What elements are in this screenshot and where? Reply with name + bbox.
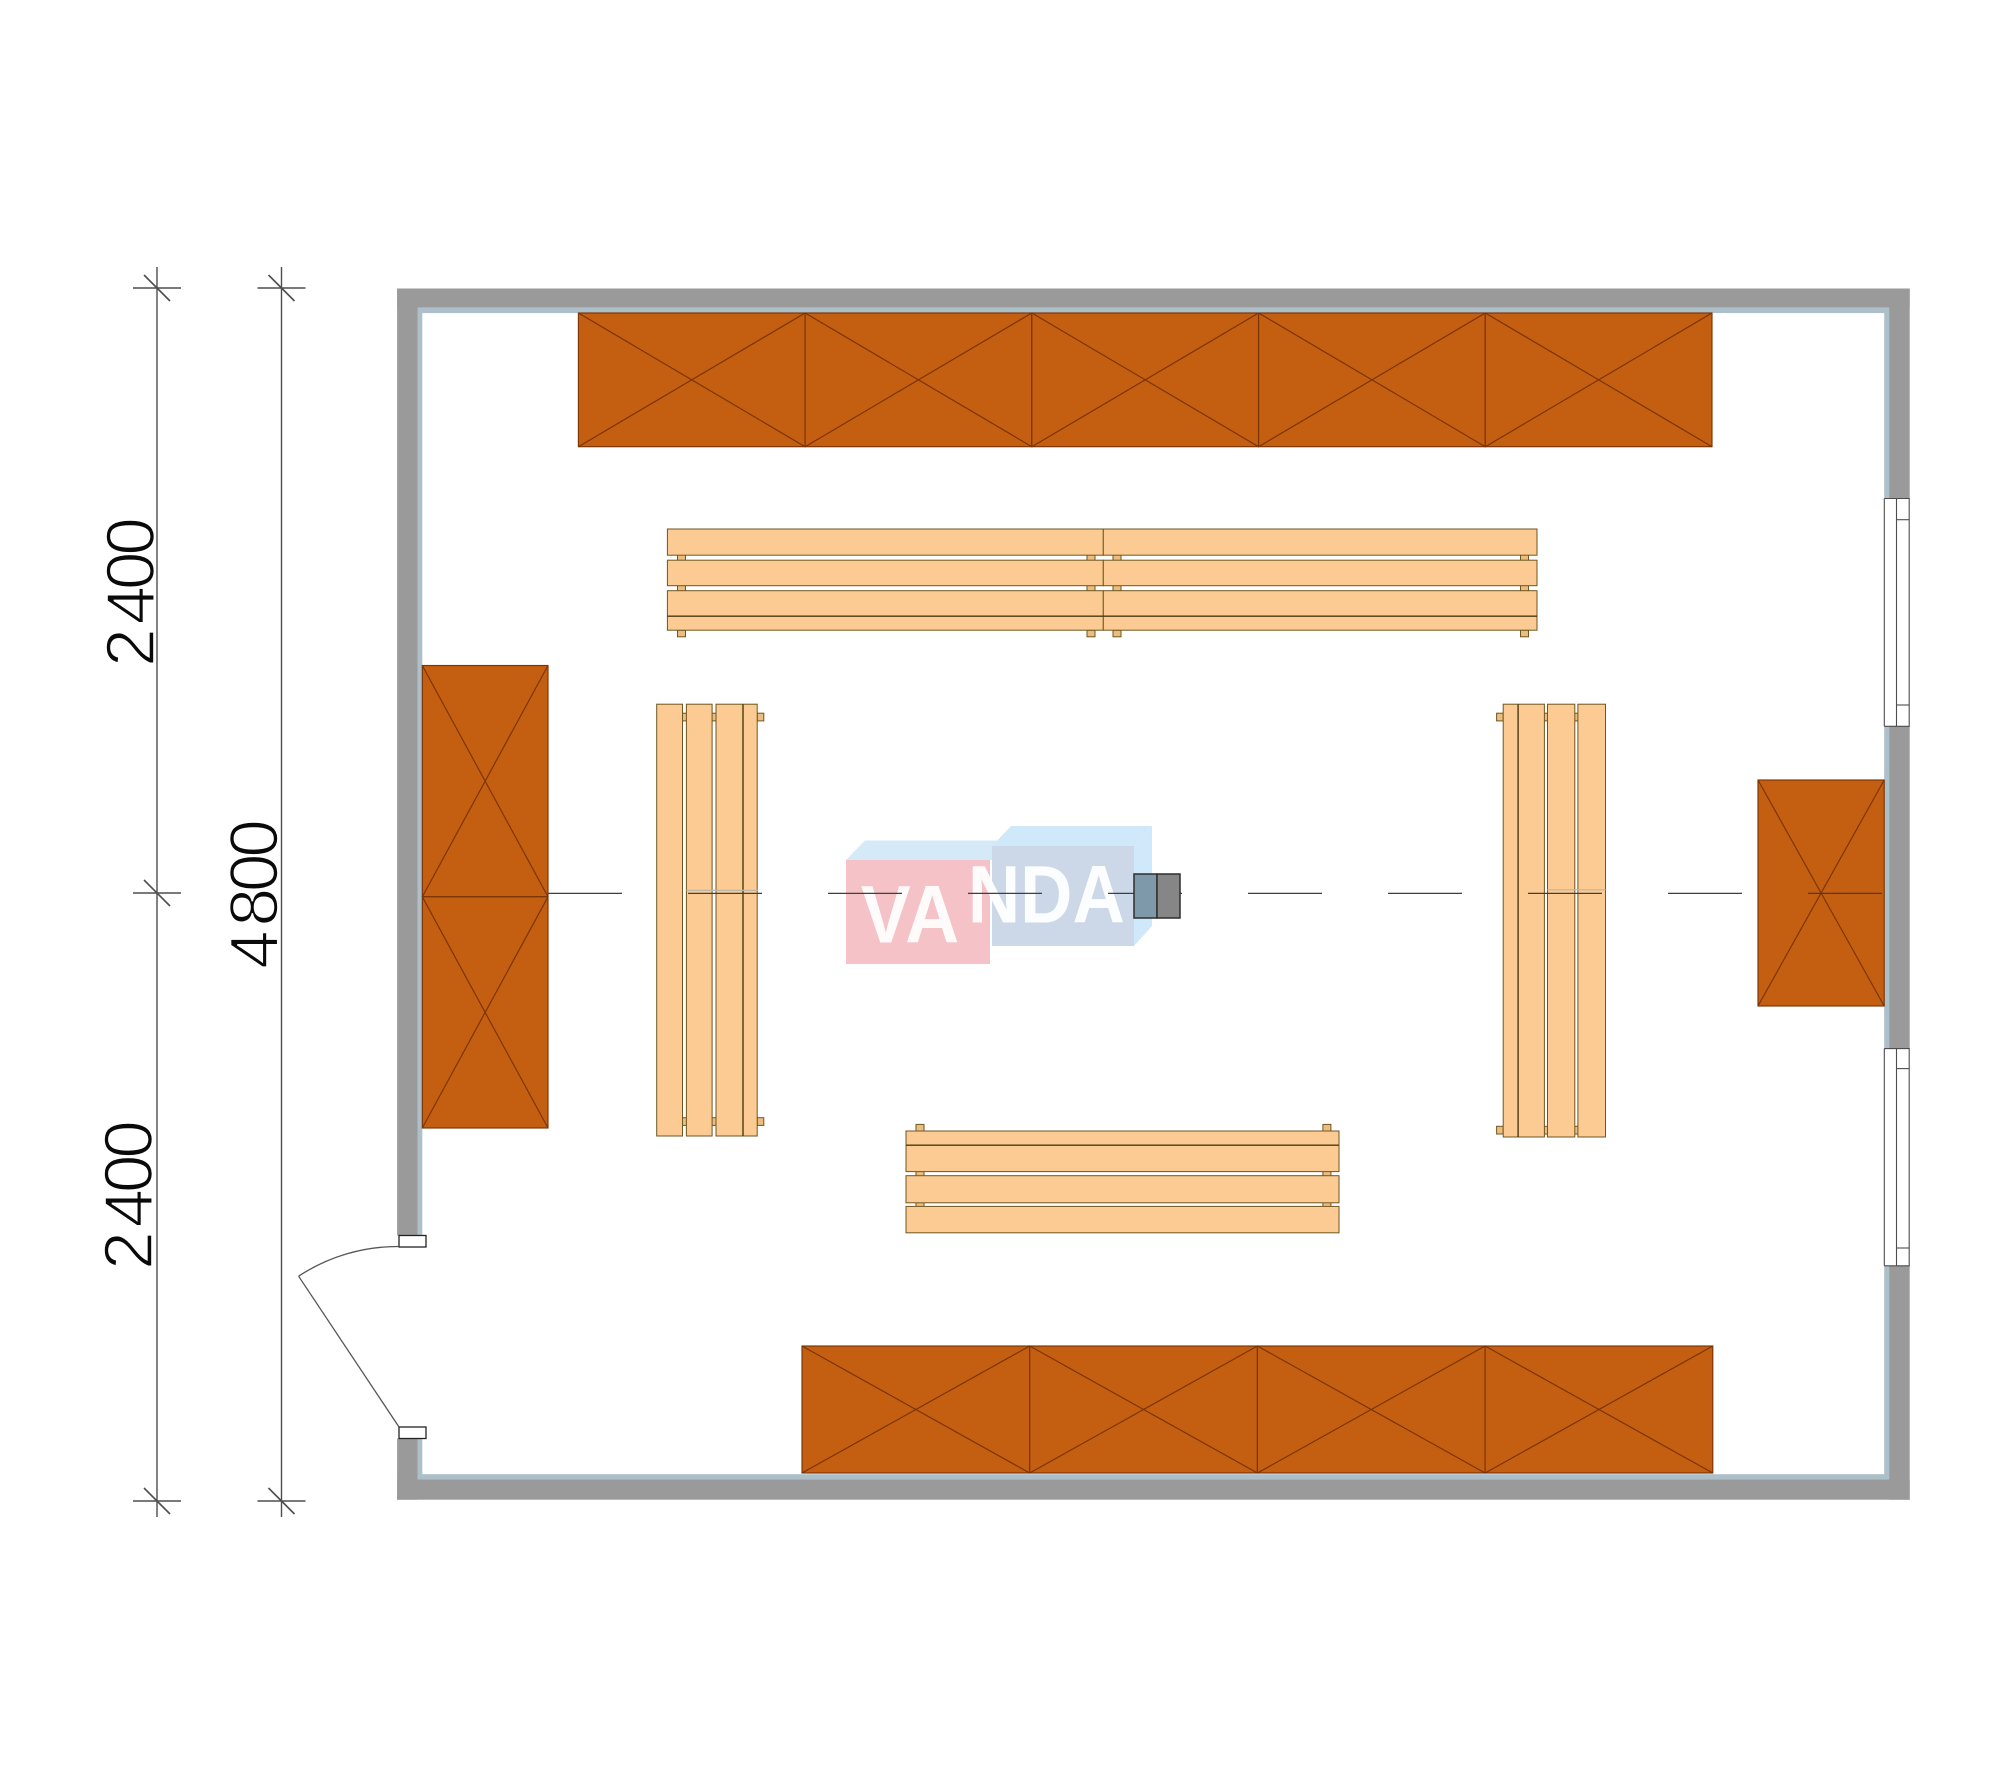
svg-text:4800: 4800: [216, 822, 293, 969]
svg-text:2400: 2400: [92, 520, 169, 667]
svg-text:NDA: NDA: [968, 850, 1125, 941]
svg-text:VA: VA: [861, 869, 959, 961]
svg-text:2400: 2400: [90, 1123, 167, 1270]
